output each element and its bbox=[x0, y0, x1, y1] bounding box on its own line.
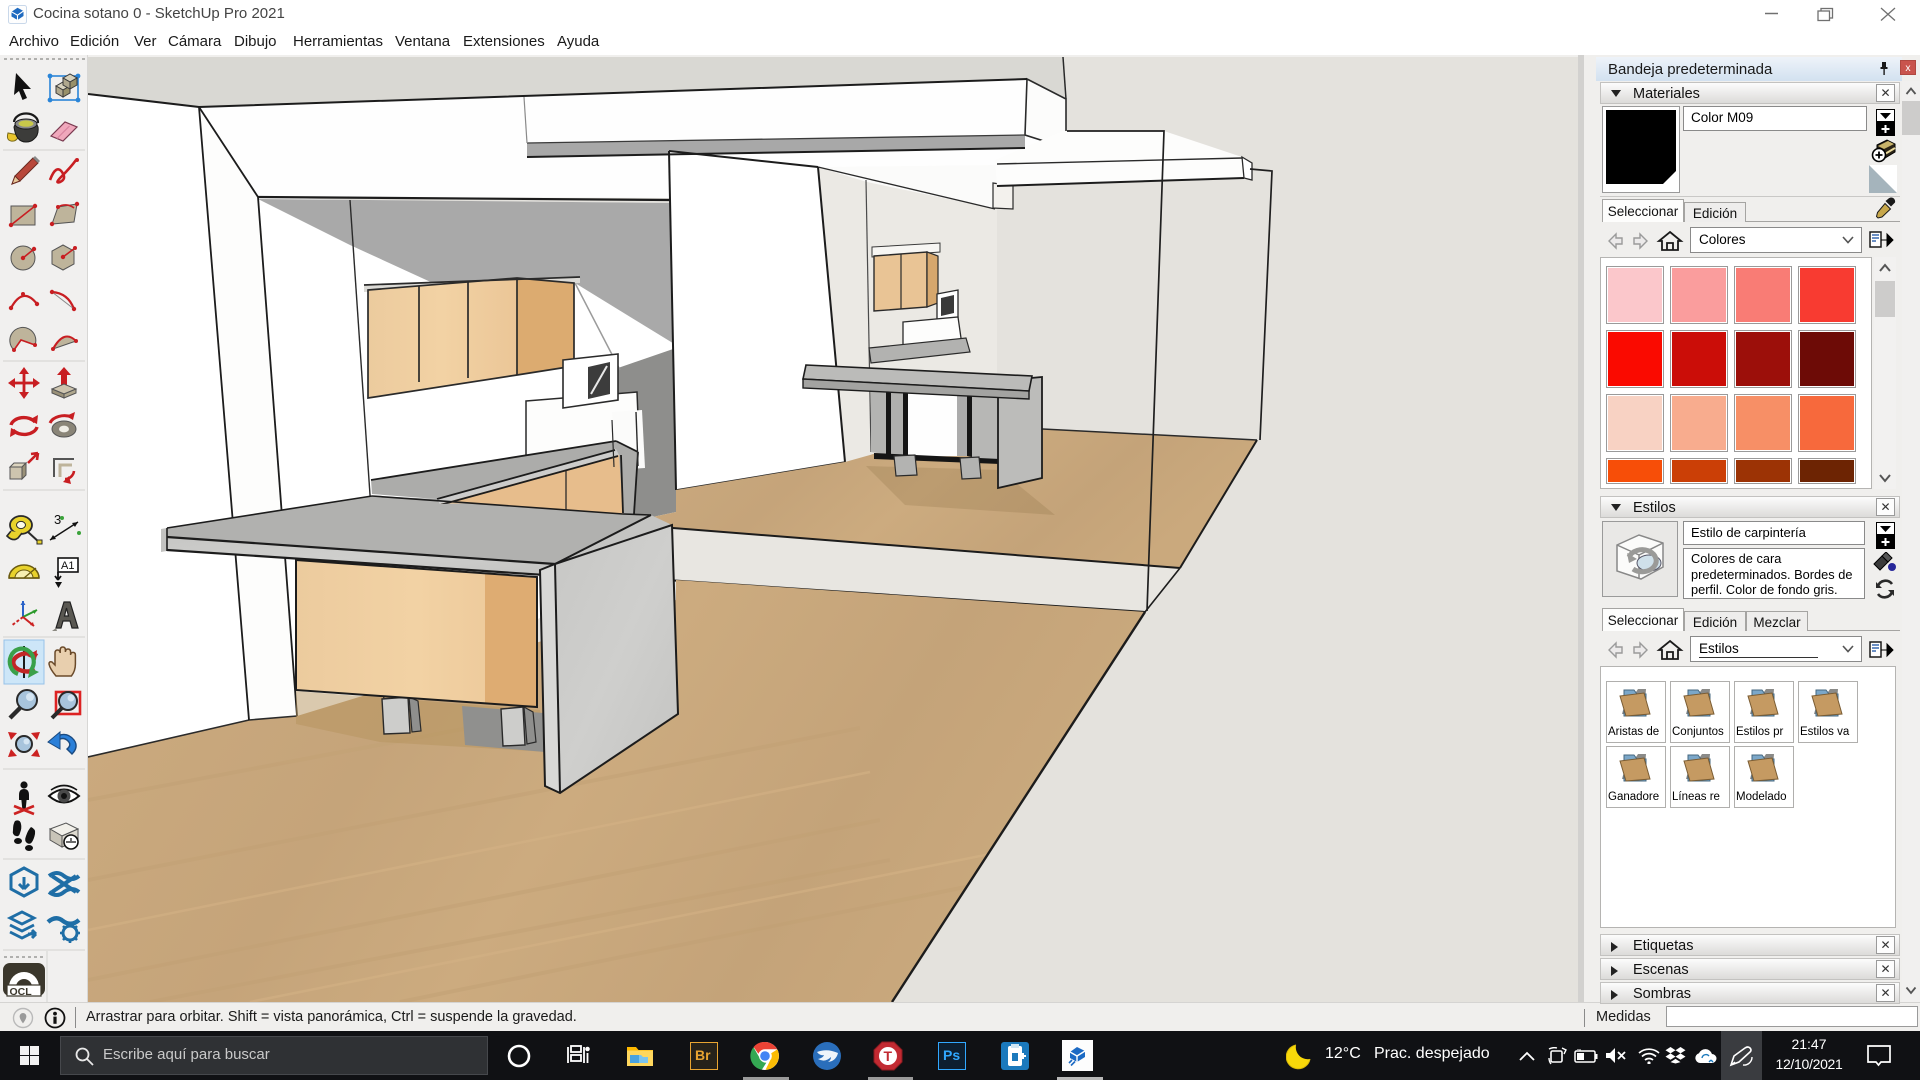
svg-text:OCL: OCL bbox=[10, 986, 33, 998]
svg-text:3: 3 bbox=[54, 512, 61, 527]
svg-text:T: T bbox=[884, 1048, 893, 1064]
svg-text:A1: A1 bbox=[61, 560, 74, 572]
